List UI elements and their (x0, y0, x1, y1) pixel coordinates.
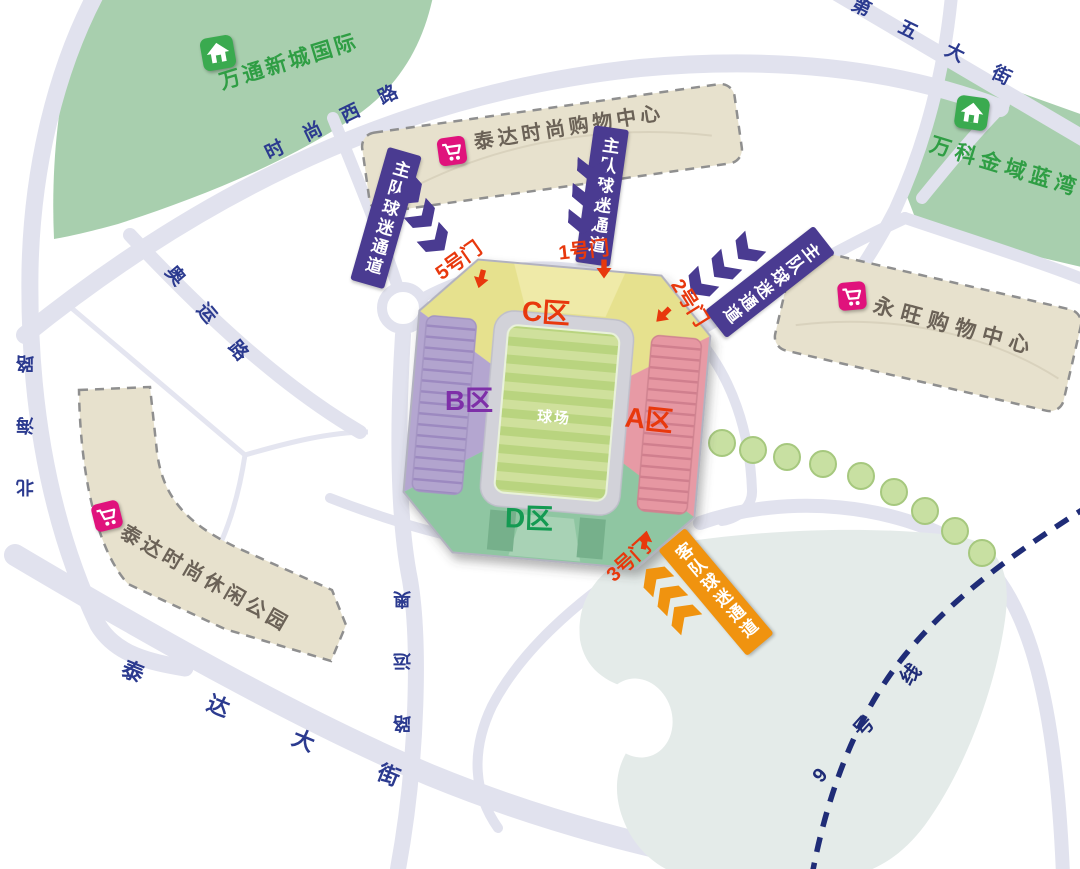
tree (969, 540, 995, 566)
zone-label-b: B区 (445, 387, 493, 415)
pond (580, 530, 1007, 869)
tree (912, 498, 938, 524)
tree (942, 518, 968, 544)
cart-icon (837, 281, 867, 311)
road-olympic-nw (130, 235, 360, 432)
gate-label-1: 1号门 (558, 238, 611, 263)
zone-label-c: C区 (521, 297, 571, 328)
home-icon (953, 94, 990, 131)
pitch-label: 球场 (537, 409, 572, 426)
tree (774, 444, 800, 470)
road-label-beihai: 北海路 (17, 311, 35, 497)
tree (740, 437, 766, 463)
zone-label-a: A区 (624, 404, 675, 437)
road-label-olympic-south: 路运奥 (394, 547, 412, 733)
tree (810, 451, 836, 477)
stadium-area-map: 万通新城国际 泰达时尚购物中心 万科金域蓝湾 永旺购物中心 泰达时尚休闲公园 时… (0, 0, 1080, 869)
zone-label-d: D区 (504, 504, 553, 534)
tree (881, 479, 907, 505)
tree (709, 430, 735, 456)
cart-icon (436, 135, 468, 167)
tree (848, 463, 874, 489)
zone-d-notch (577, 517, 606, 559)
